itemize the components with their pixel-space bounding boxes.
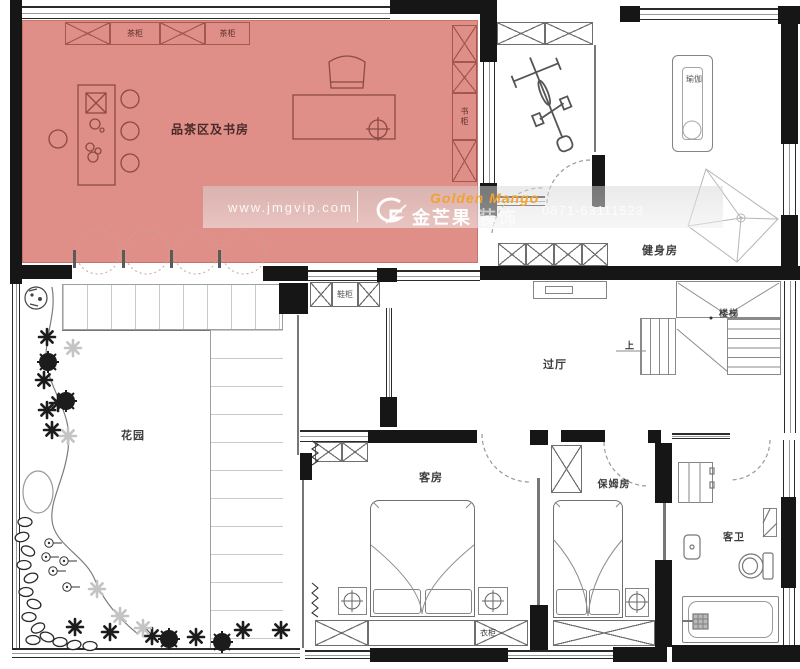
watermark-brand-cn: 金芒果装饰 (412, 204, 518, 230)
wall-segment (655, 443, 672, 503)
console-table-detail (545, 286, 573, 294)
wall-segment (663, 503, 666, 560)
wall-segment (594, 45, 596, 152)
stairs-up-label: 上 (625, 339, 635, 352)
wall-segment (613, 647, 667, 662)
bookcase-cell (452, 62, 477, 93)
window-band (300, 430, 368, 442)
floor-plan-canvas: 茶柜 茶柜 书柜 鞋柜 (0, 0, 800, 669)
tea-cabinet-label-cell: 茶柜 (110, 22, 160, 45)
watermark-url: www.jmgvip.com (228, 200, 353, 215)
wall-segment (672, 645, 800, 662)
wardrobe-cell (315, 620, 368, 646)
bathtub-inner (688, 601, 773, 638)
room-label-hallway: 过厅 (543, 356, 567, 372)
nightstand (625, 588, 649, 617)
radiator-hatch (312, 441, 318, 617)
tea-cabinet-cell (65, 22, 110, 45)
garden-lines (23, 287, 138, 634)
window-band (308, 270, 377, 281)
room-label-stairs: 楼梯 (719, 307, 739, 320)
wall-segment (655, 560, 672, 647)
wall-segment (530, 430, 548, 445)
wall-segment (648, 430, 661, 443)
window-band (783, 588, 795, 645)
room-label-yoga: 瑜伽 (686, 74, 702, 85)
wall-segment (10, 0, 22, 284)
shoe-cabinet-cell (310, 282, 332, 307)
gym-cabinet-cell (526, 243, 554, 266)
garden-fence-bottom (12, 648, 300, 658)
window-band (397, 270, 480, 281)
gym-cabinet-cell (498, 243, 526, 266)
room-label-guest-bath: 客卫 (723, 529, 745, 544)
wall-segment (781, 22, 798, 144)
watermark-phone: 0871-63111523 (542, 203, 644, 218)
garden-fence-left (12, 284, 20, 658)
window-band (784, 281, 796, 433)
wall-segment (530, 605, 548, 650)
window-band (508, 650, 613, 659)
bookcase-label: 书柜 (459, 107, 470, 127)
brand-cn-main: 金芒果 (412, 208, 472, 228)
spin-bike-icon (508, 49, 590, 160)
wardrobe-label: 衣柜 (480, 628, 496, 639)
storage-cell (545, 22, 593, 45)
cabinet-cell (342, 442, 368, 462)
pillow (425, 589, 472, 614)
shoe-cabinet-label-cell: 鞋柜 (332, 282, 358, 307)
pillow (589, 589, 620, 615)
window-band (305, 650, 370, 659)
window-band (672, 433, 730, 439)
nightstand (338, 587, 367, 615)
wardrobe-cell (368, 620, 475, 646)
window-band (483, 62, 495, 183)
bookcase-label-cell: 书柜 (452, 93, 477, 140)
stairs-treads-left (640, 318, 676, 375)
wall-segment (263, 266, 308, 281)
room-label-garden: 花园 (121, 427, 145, 443)
wall-segment (380, 397, 397, 427)
wardrobe-cell (553, 620, 655, 646)
shoe-cabinet-cell (358, 282, 380, 307)
stairs-treads-right (727, 318, 781, 375)
wall-segment (480, 12, 497, 62)
wall-segment (22, 265, 72, 279)
wall-segment (620, 6, 640, 22)
tea-cabinet-label-cell: 茶柜 (205, 22, 250, 45)
wall-segment (370, 648, 508, 662)
garden-lawn-edge (62, 330, 210, 331)
wall-segment (537, 478, 540, 605)
wardrobe-cell (551, 445, 582, 493)
room-label-tea-study: 品茶区及书房 (171, 121, 249, 138)
window-band (640, 8, 778, 20)
brand-cn-suffix: 装饰 (478, 208, 518, 228)
garden-deck-right (210, 330, 283, 648)
window-band (783, 144, 796, 215)
room-label-guest-room: 客房 (419, 469, 443, 485)
window-band (783, 440, 795, 497)
wall-segment (300, 453, 312, 480)
wall-segment (279, 283, 308, 314)
wall-segment (377, 268, 397, 282)
wall-segment (480, 266, 800, 280)
bookcase-cell (452, 140, 477, 182)
room-label-nanny-room: 保姆房 (598, 476, 631, 491)
wall-segment (297, 315, 299, 455)
room-label-gym: 健身房 (642, 242, 678, 258)
watermark-divider (357, 191, 358, 222)
wall-segment (561, 430, 605, 442)
pillow (373, 589, 421, 614)
gym-cabinet-cell (554, 243, 582, 266)
window-band (22, 6, 390, 19)
pillow (556, 589, 587, 615)
cabinet-cell (315, 442, 342, 462)
gym-cabinet-cell (582, 243, 608, 266)
wall-segment (781, 497, 796, 588)
golden-mango-logo-icon (366, 195, 412, 227)
wall-segment (368, 430, 477, 443)
bookcase-cell (452, 25, 477, 62)
washer-cabinet (678, 462, 713, 503)
window-band (386, 308, 392, 398)
nightstand (478, 587, 508, 615)
wall-segment (302, 480, 304, 648)
tea-cabinet-cell (160, 22, 205, 45)
storage-cell (497, 22, 545, 45)
bath-shelf (763, 508, 777, 537)
garden-deck-top (62, 284, 283, 330)
